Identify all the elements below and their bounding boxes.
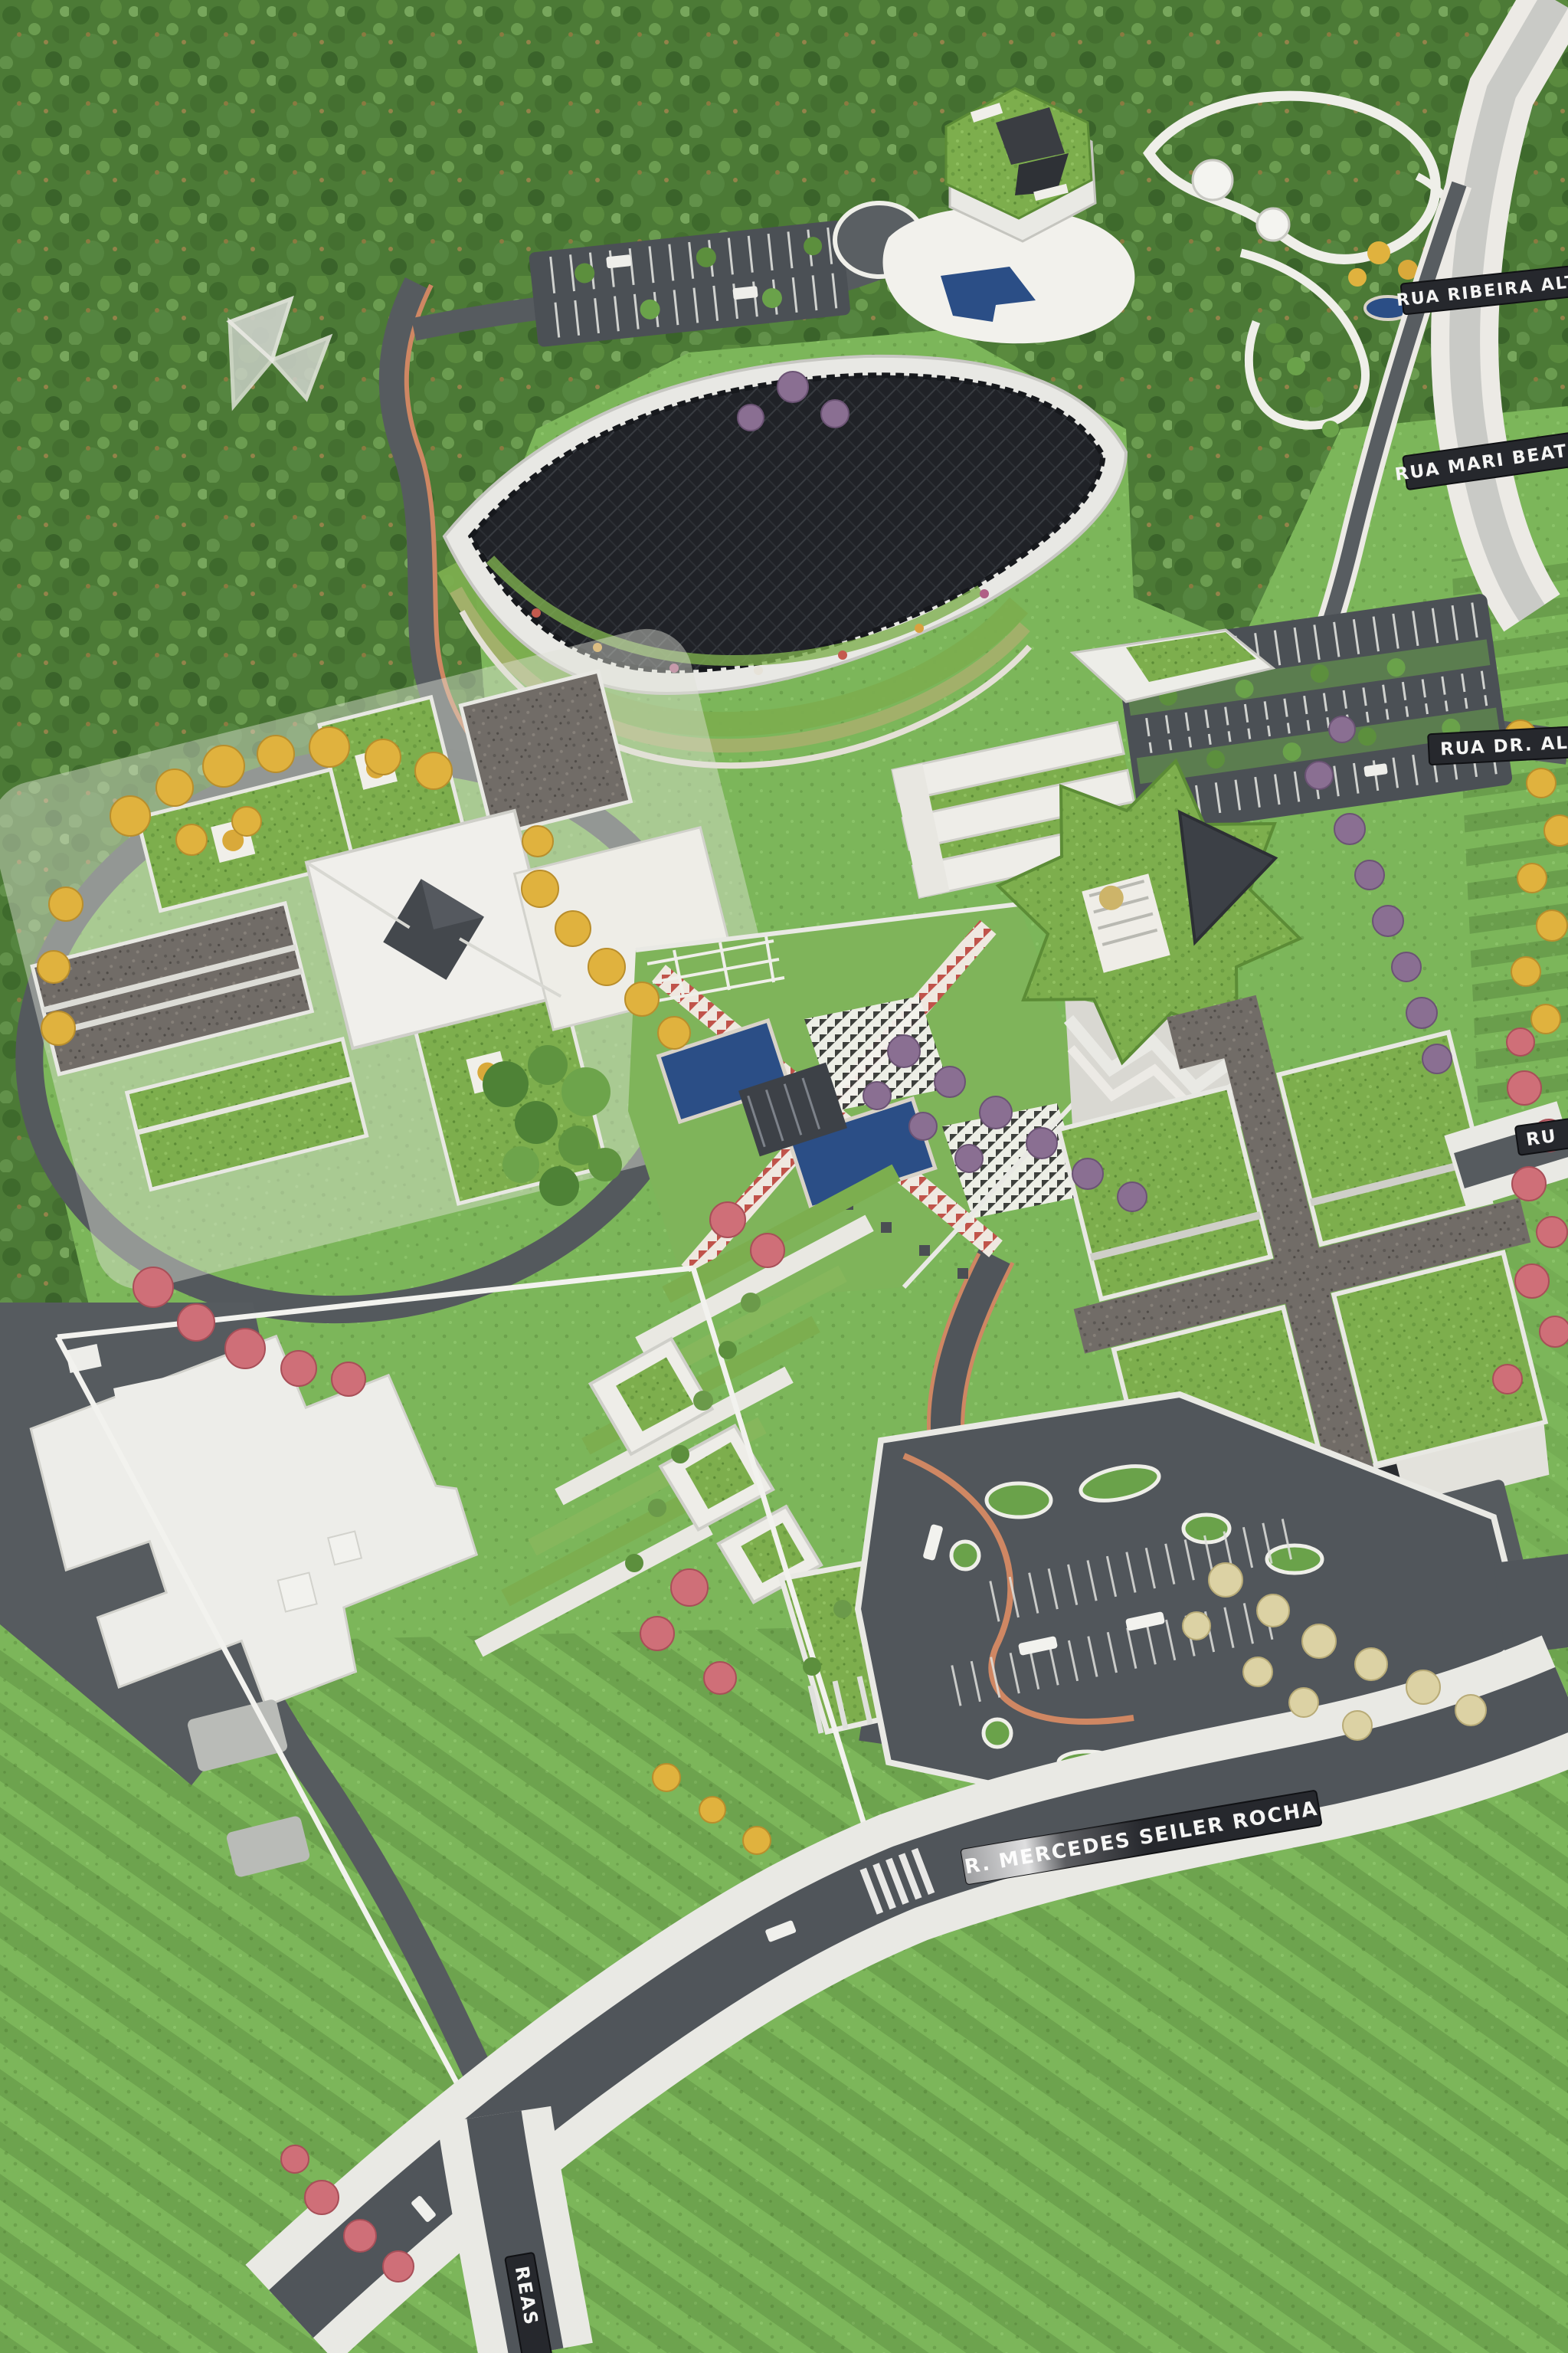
tree [1537,910,1567,941]
tree [719,1341,737,1359]
tree [1493,1365,1522,1394]
tree [38,951,70,983]
model-photo-canvas: RUA RIBEIRA ALTA RUA MARI BEATRIZ RUA DR… [0,0,1568,2353]
tree [588,1148,622,1181]
tree [1537,1217,1567,1247]
tree [257,736,294,772]
tree [751,1234,784,1267]
tree [176,824,207,855]
tree [1507,1071,1541,1105]
tree [332,1362,365,1396]
tree [625,1554,643,1572]
tree [1305,762,1333,789]
tree [561,1067,611,1116]
tree [1302,1624,1336,1658]
tree [1322,421,1339,438]
tree [539,1166,579,1206]
tree [741,1293,761,1313]
tree [1209,1563,1242,1597]
model-shape [328,1532,362,1565]
tree [1540,1316,1568,1347]
street-name-text: RU [1525,1126,1559,1150]
tree [803,1657,821,1676]
tree [951,1542,979,1569]
tree [1373,906,1403,936]
tree [833,1600,852,1618]
tree [1305,389,1324,408]
tree [1183,1612,1210,1640]
tree [522,826,553,857]
tree [1512,1167,1546,1201]
tree [653,1764,680,1791]
tree [281,1351,316,1386]
tree [515,1101,558,1144]
tree [1511,957,1540,986]
tree [133,1267,173,1307]
tree [1517,864,1547,893]
tree [693,1391,713,1411]
tree [1507,1028,1534,1056]
tree [821,400,849,428]
tree [1392,952,1421,982]
tree [658,1017,690,1049]
tree [984,1719,1011,1747]
tree [648,1499,666,1517]
model-shape [881,1222,892,1233]
tree [1355,1648,1387,1680]
tree [178,1304,214,1341]
tree [980,1096,1012,1129]
tree [203,746,244,787]
tree [863,1082,891,1109]
tree [671,1569,708,1606]
tree [955,1145,983,1172]
tree [49,887,83,921]
tree [1289,1688,1318,1717]
tree [888,1035,920,1067]
tree [935,1067,965,1097]
tree [1531,1004,1560,1034]
tree [909,1113,937,1140]
tree [1355,860,1384,890]
tree [528,1045,568,1085]
tree [754,666,763,675]
tree [1406,998,1437,1028]
tree [1287,357,1305,375]
tree [1343,1711,1372,1740]
tree [156,769,193,806]
tree [365,739,401,775]
tree [1257,1594,1289,1627]
tree [1422,1044,1452,1073]
tree [1544,815,1568,846]
tree [1367,241,1390,264]
tree [588,949,625,985]
tree [522,870,558,907]
tree [625,982,659,1016]
tree [1406,1670,1440,1704]
dome-structure [1193,160,1232,200]
tree [743,1827,771,1854]
tree [1118,1182,1147,1211]
tree [383,2251,414,2282]
tree [1348,268,1367,287]
tree [555,911,591,946]
tree [309,727,349,767]
tree [1026,1128,1057,1158]
tree [1455,1695,1486,1725]
tree [704,1662,736,1694]
tree [232,807,261,836]
tree [1527,768,1556,798]
tree [777,372,808,402]
tree [699,1797,725,1823]
tree [415,752,452,789]
tree [1329,716,1355,742]
tree [915,624,924,633]
tree [532,608,541,618]
tree [483,1061,529,1107]
tree [838,651,847,660]
model-shape [987,1483,1051,1517]
tree [1515,1264,1549,1298]
tree [710,1202,745,1237]
tree [738,405,764,431]
tree [1072,1158,1103,1189]
tree [225,1329,265,1368]
tree [502,1146,539,1183]
hub-exit-road [1494,1554,1568,1655]
tree [1334,814,1365,844]
tree [640,1617,674,1650]
tree [1243,1657,1272,1686]
tree [305,2181,339,2214]
dome-structure [1257,208,1289,241]
model-shape [278,1573,317,1612]
tree [1265,323,1285,343]
model-shape [919,1245,930,1256]
tree [344,2220,376,2252]
tree [41,1011,75,1045]
model-shape [957,1268,968,1279]
tree [980,589,989,598]
tree [281,2145,309,2173]
tree [671,1445,689,1463]
tree [110,796,150,836]
